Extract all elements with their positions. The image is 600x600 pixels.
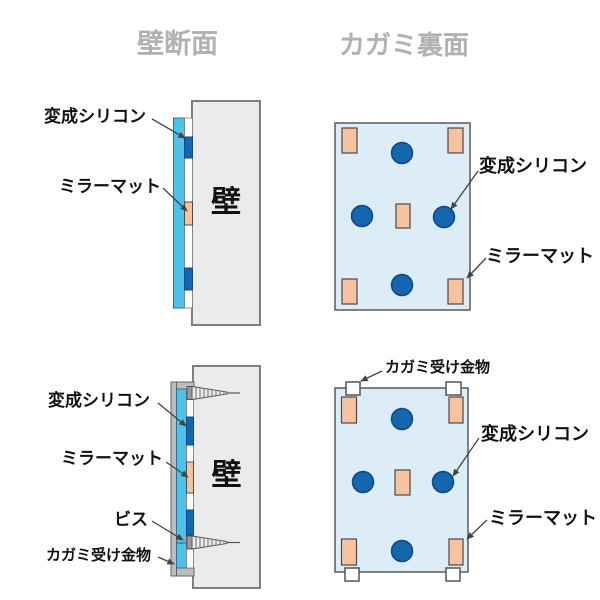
label-mirror-mat: ミラーマット bbox=[486, 246, 594, 267]
title-mirror-back: カガミ裏面 bbox=[339, 32, 469, 58]
mirror-mat-pad bbox=[448, 128, 463, 153]
bracket-clip bbox=[446, 568, 460, 581]
label-silicone: 変成シリコン bbox=[48, 391, 150, 411]
silicone-dot bbox=[392, 275, 413, 296]
mirror-mat-pad bbox=[448, 279, 463, 304]
silicone-dot bbox=[433, 472, 454, 493]
label-bracket: カガミ受け金物 bbox=[46, 547, 151, 564]
silicone-dot bbox=[392, 143, 413, 164]
mirror-mat-pad bbox=[396, 204, 410, 228]
label-mirror-mat: ミラーマット bbox=[59, 177, 161, 197]
mirror-mat-pad bbox=[342, 128, 357, 153]
label-mirror-mat: ミラーマット bbox=[61, 449, 163, 469]
silicone-block bbox=[187, 417, 194, 445]
mirror-mat-pad bbox=[449, 539, 463, 565]
silicone-dot bbox=[392, 541, 413, 562]
silicone-block bbox=[187, 510, 194, 535]
leader-bracket bbox=[361, 371, 382, 381]
mirror-mat-pad bbox=[449, 397, 463, 423]
silicone-dot bbox=[352, 206, 373, 227]
label-bracket: カガミ受け金物 bbox=[385, 359, 490, 376]
label-silicone: 変成シリコン bbox=[481, 424, 589, 445]
mirror-mat-pad bbox=[342, 279, 357, 304]
label-mirror-mat: ミラーマット bbox=[489, 508, 597, 529]
label-silicone: 変成シリコン bbox=[479, 156, 587, 177]
title-wall-section: 壁断面 bbox=[137, 31, 218, 58]
label-wall: 壁 bbox=[192, 188, 260, 218]
mirror-bracket-lip bbox=[171, 382, 177, 576]
mirror-mat-pad bbox=[342, 397, 357, 423]
silicone-dot bbox=[392, 409, 413, 430]
mirror-installation-diagram: 壁断面 カガミ裏面 変成シリコン ミラーマット 壁 変成シリコン ミラーマット … bbox=[0, 0, 600, 600]
bracket-clip bbox=[345, 568, 359, 581]
mirror-glass bbox=[174, 118, 185, 308]
bracket-clip bbox=[346, 382, 360, 395]
bracket-clip bbox=[446, 382, 461, 395]
label-wall: 壁 bbox=[193, 461, 260, 491]
mirror-back-bottom-diagram bbox=[335, 371, 487, 581]
mirror-mat-pad bbox=[395, 470, 410, 495]
silicone-block bbox=[185, 268, 193, 290]
silicone-dot bbox=[353, 472, 374, 493]
label-screw: ビス bbox=[114, 510, 148, 530]
silicone-dot bbox=[434, 207, 455, 228]
mirror-mat-pad bbox=[342, 539, 357, 565]
silicone-block bbox=[185, 137, 193, 158]
mirror-back-top-diagram bbox=[335, 123, 486, 310]
label-silicone: 変成シリコン bbox=[44, 107, 146, 127]
leader-mirror-mat bbox=[467, 520, 487, 539]
mirror-glass bbox=[177, 389, 187, 568]
